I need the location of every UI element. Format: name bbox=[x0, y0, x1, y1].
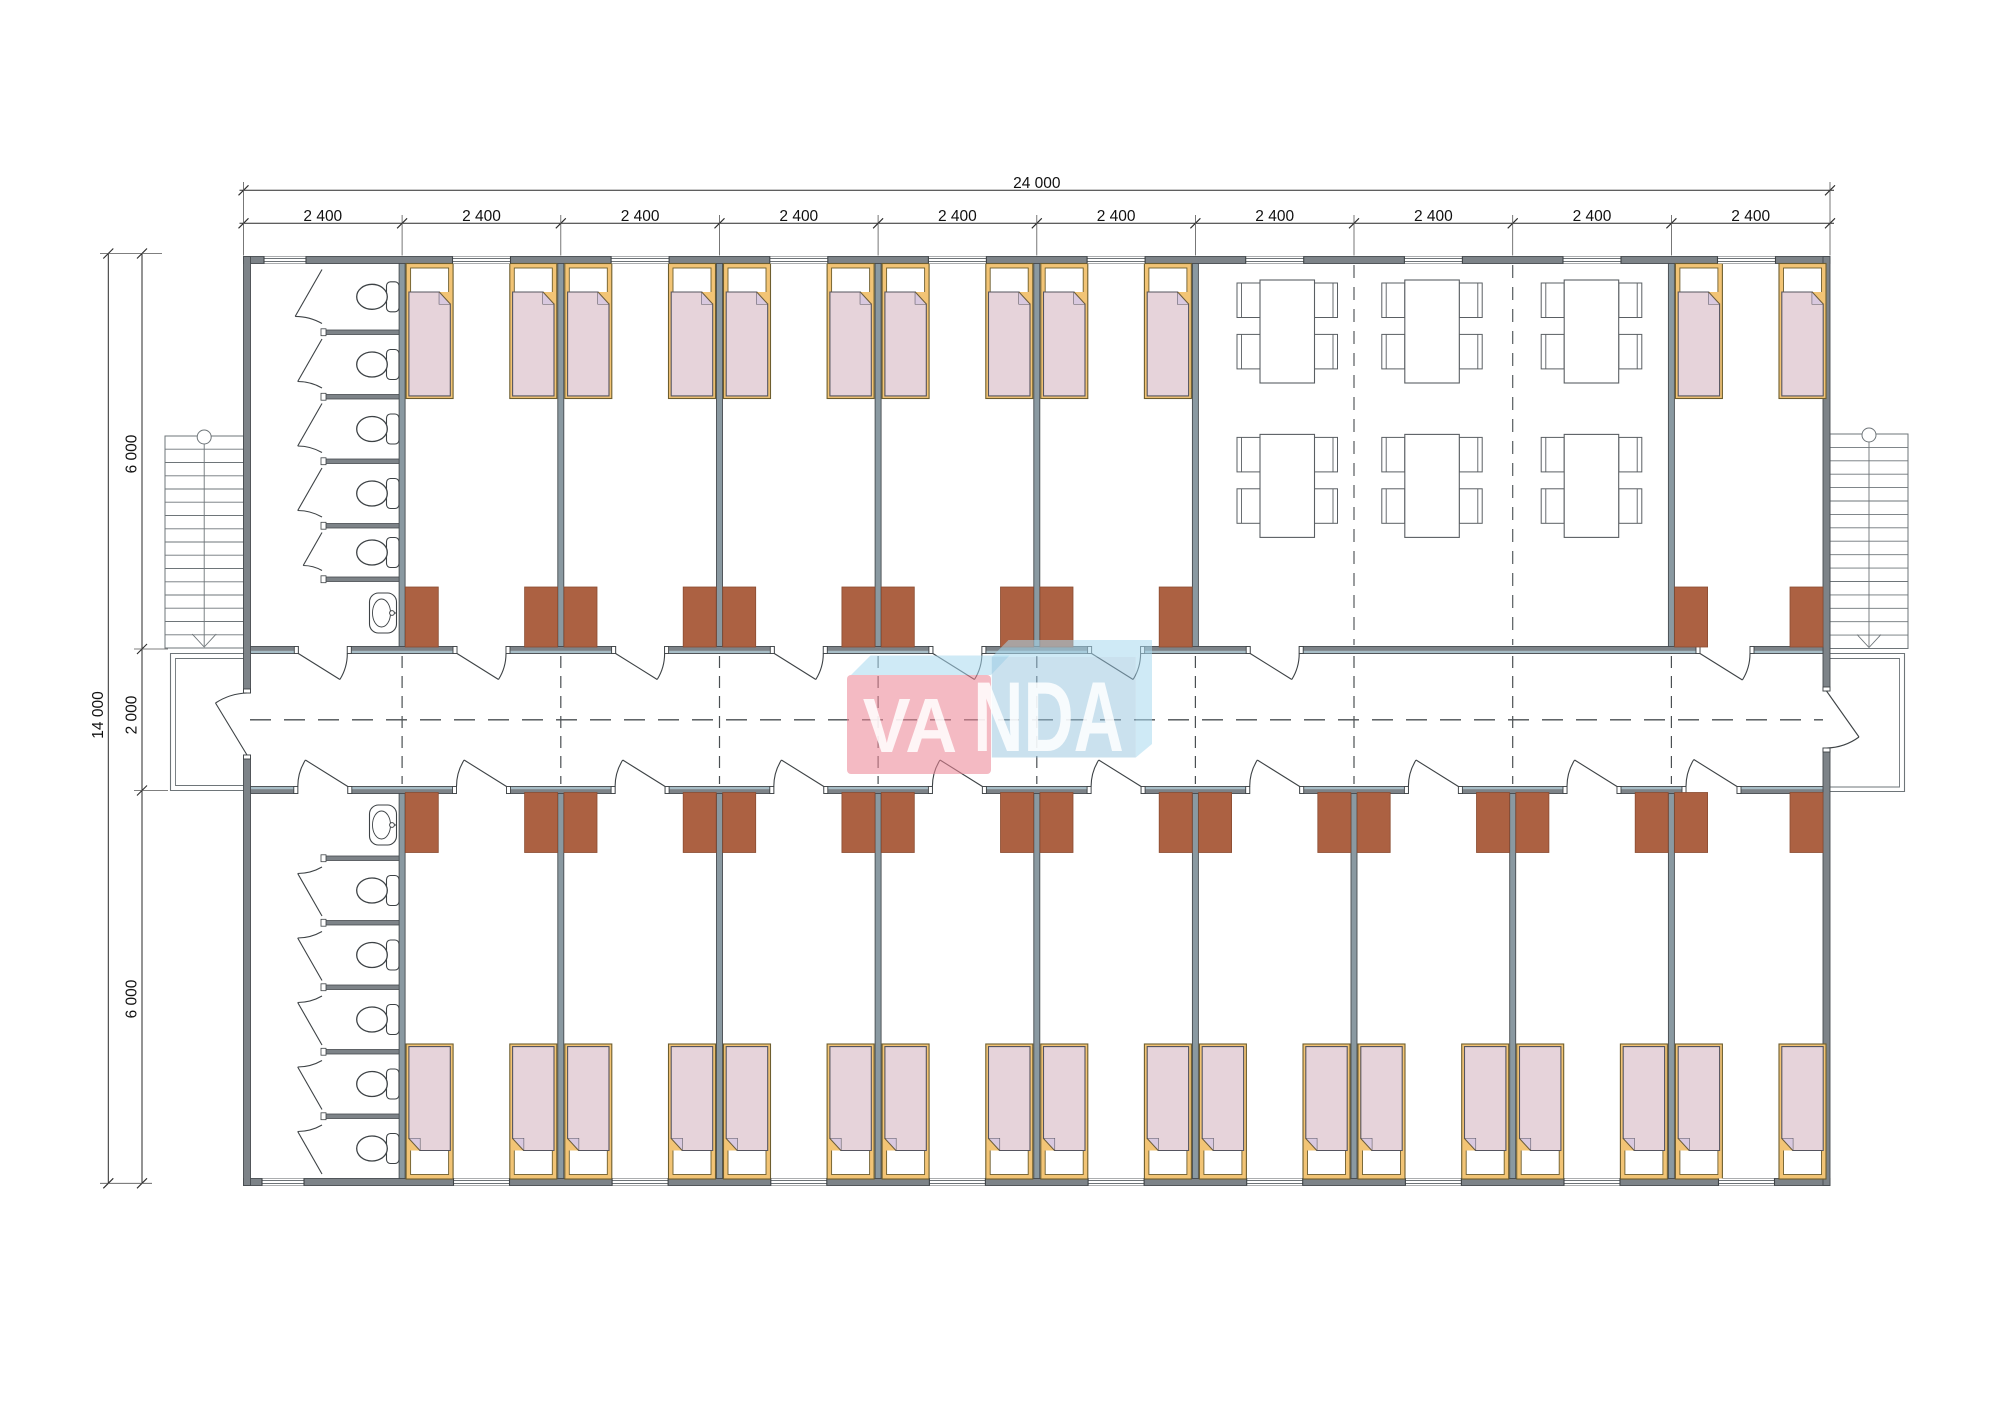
svg-text:14 000: 14 000 bbox=[90, 691, 107, 739]
svg-text:2 400: 2 400 bbox=[938, 208, 977, 225]
svg-text:24 000: 24 000 bbox=[1013, 175, 1061, 192]
svg-text:NDA: NDA bbox=[973, 662, 1124, 773]
svg-text:2 400: 2 400 bbox=[462, 208, 501, 225]
svg-text:6 000: 6 000 bbox=[124, 979, 141, 1018]
svg-text:6 000: 6 000 bbox=[124, 434, 141, 473]
svg-text:2 400: 2 400 bbox=[1255, 208, 1294, 225]
svg-text:VA: VA bbox=[863, 683, 958, 769]
svg-text:2 400: 2 400 bbox=[1414, 208, 1453, 225]
svg-text:2 400: 2 400 bbox=[1573, 208, 1612, 225]
svg-text:2 400: 2 400 bbox=[303, 208, 342, 225]
svg-text:2 400: 2 400 bbox=[1731, 208, 1770, 225]
svg-text:2 400: 2 400 bbox=[621, 208, 660, 225]
svg-text:2 000: 2 000 bbox=[124, 695, 141, 734]
svg-text:2 400: 2 400 bbox=[1097, 208, 1136, 225]
svg-text:2 400: 2 400 bbox=[779, 208, 818, 225]
